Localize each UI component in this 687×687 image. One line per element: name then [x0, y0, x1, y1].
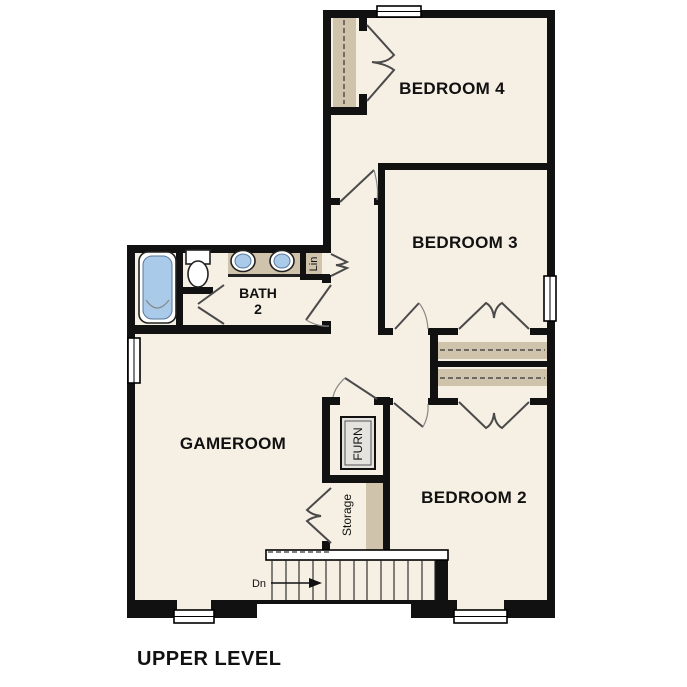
- furnace-label: FURN: [351, 427, 365, 460]
- bath-label-line1: BATH: [239, 285, 277, 301]
- bath-label-line2: 2: [254, 301, 262, 317]
- sink-right: [270, 251, 294, 272]
- sink-left: [231, 251, 255, 272]
- bedroom2-bay-window: [454, 610, 507, 623]
- storage-chase: [366, 478, 383, 554]
- stairs-dn-label: Dn: [252, 578, 266, 590]
- gameroom-label: GAMEROOM: [180, 434, 286, 453]
- floor-plan: BEDROOM 4 BEDROOM 3 BEDROOM 2 GAMEROOM B…: [0, 0, 687, 687]
- bathtub: [139, 252, 176, 323]
- gameroom-window: [128, 338, 140, 383]
- bedroom3-label: BEDROOM 3: [412, 233, 518, 252]
- bedroom4-window: [377, 6, 421, 17]
- storage-label: Storage: [340, 494, 354, 536]
- gameroom-bay-window: [174, 610, 214, 623]
- bedroom3-window: [544, 276, 556, 321]
- bedroom2-label: BEDROOM 2: [421, 488, 527, 507]
- toilet: [186, 250, 210, 287]
- upper-block-floor: [327, 14, 551, 334]
- floor-plan-page: BEDROOM 4 BEDROOM 3 BEDROOM 2 GAMEROOM B…: [0, 0, 687, 687]
- linen-label: Lin: [308, 257, 320, 272]
- vanity-edge: [228, 274, 302, 277]
- bedroom4-label: BEDROOM 4: [399, 79, 505, 98]
- page-title: UPPER LEVEL: [137, 648, 281, 671]
